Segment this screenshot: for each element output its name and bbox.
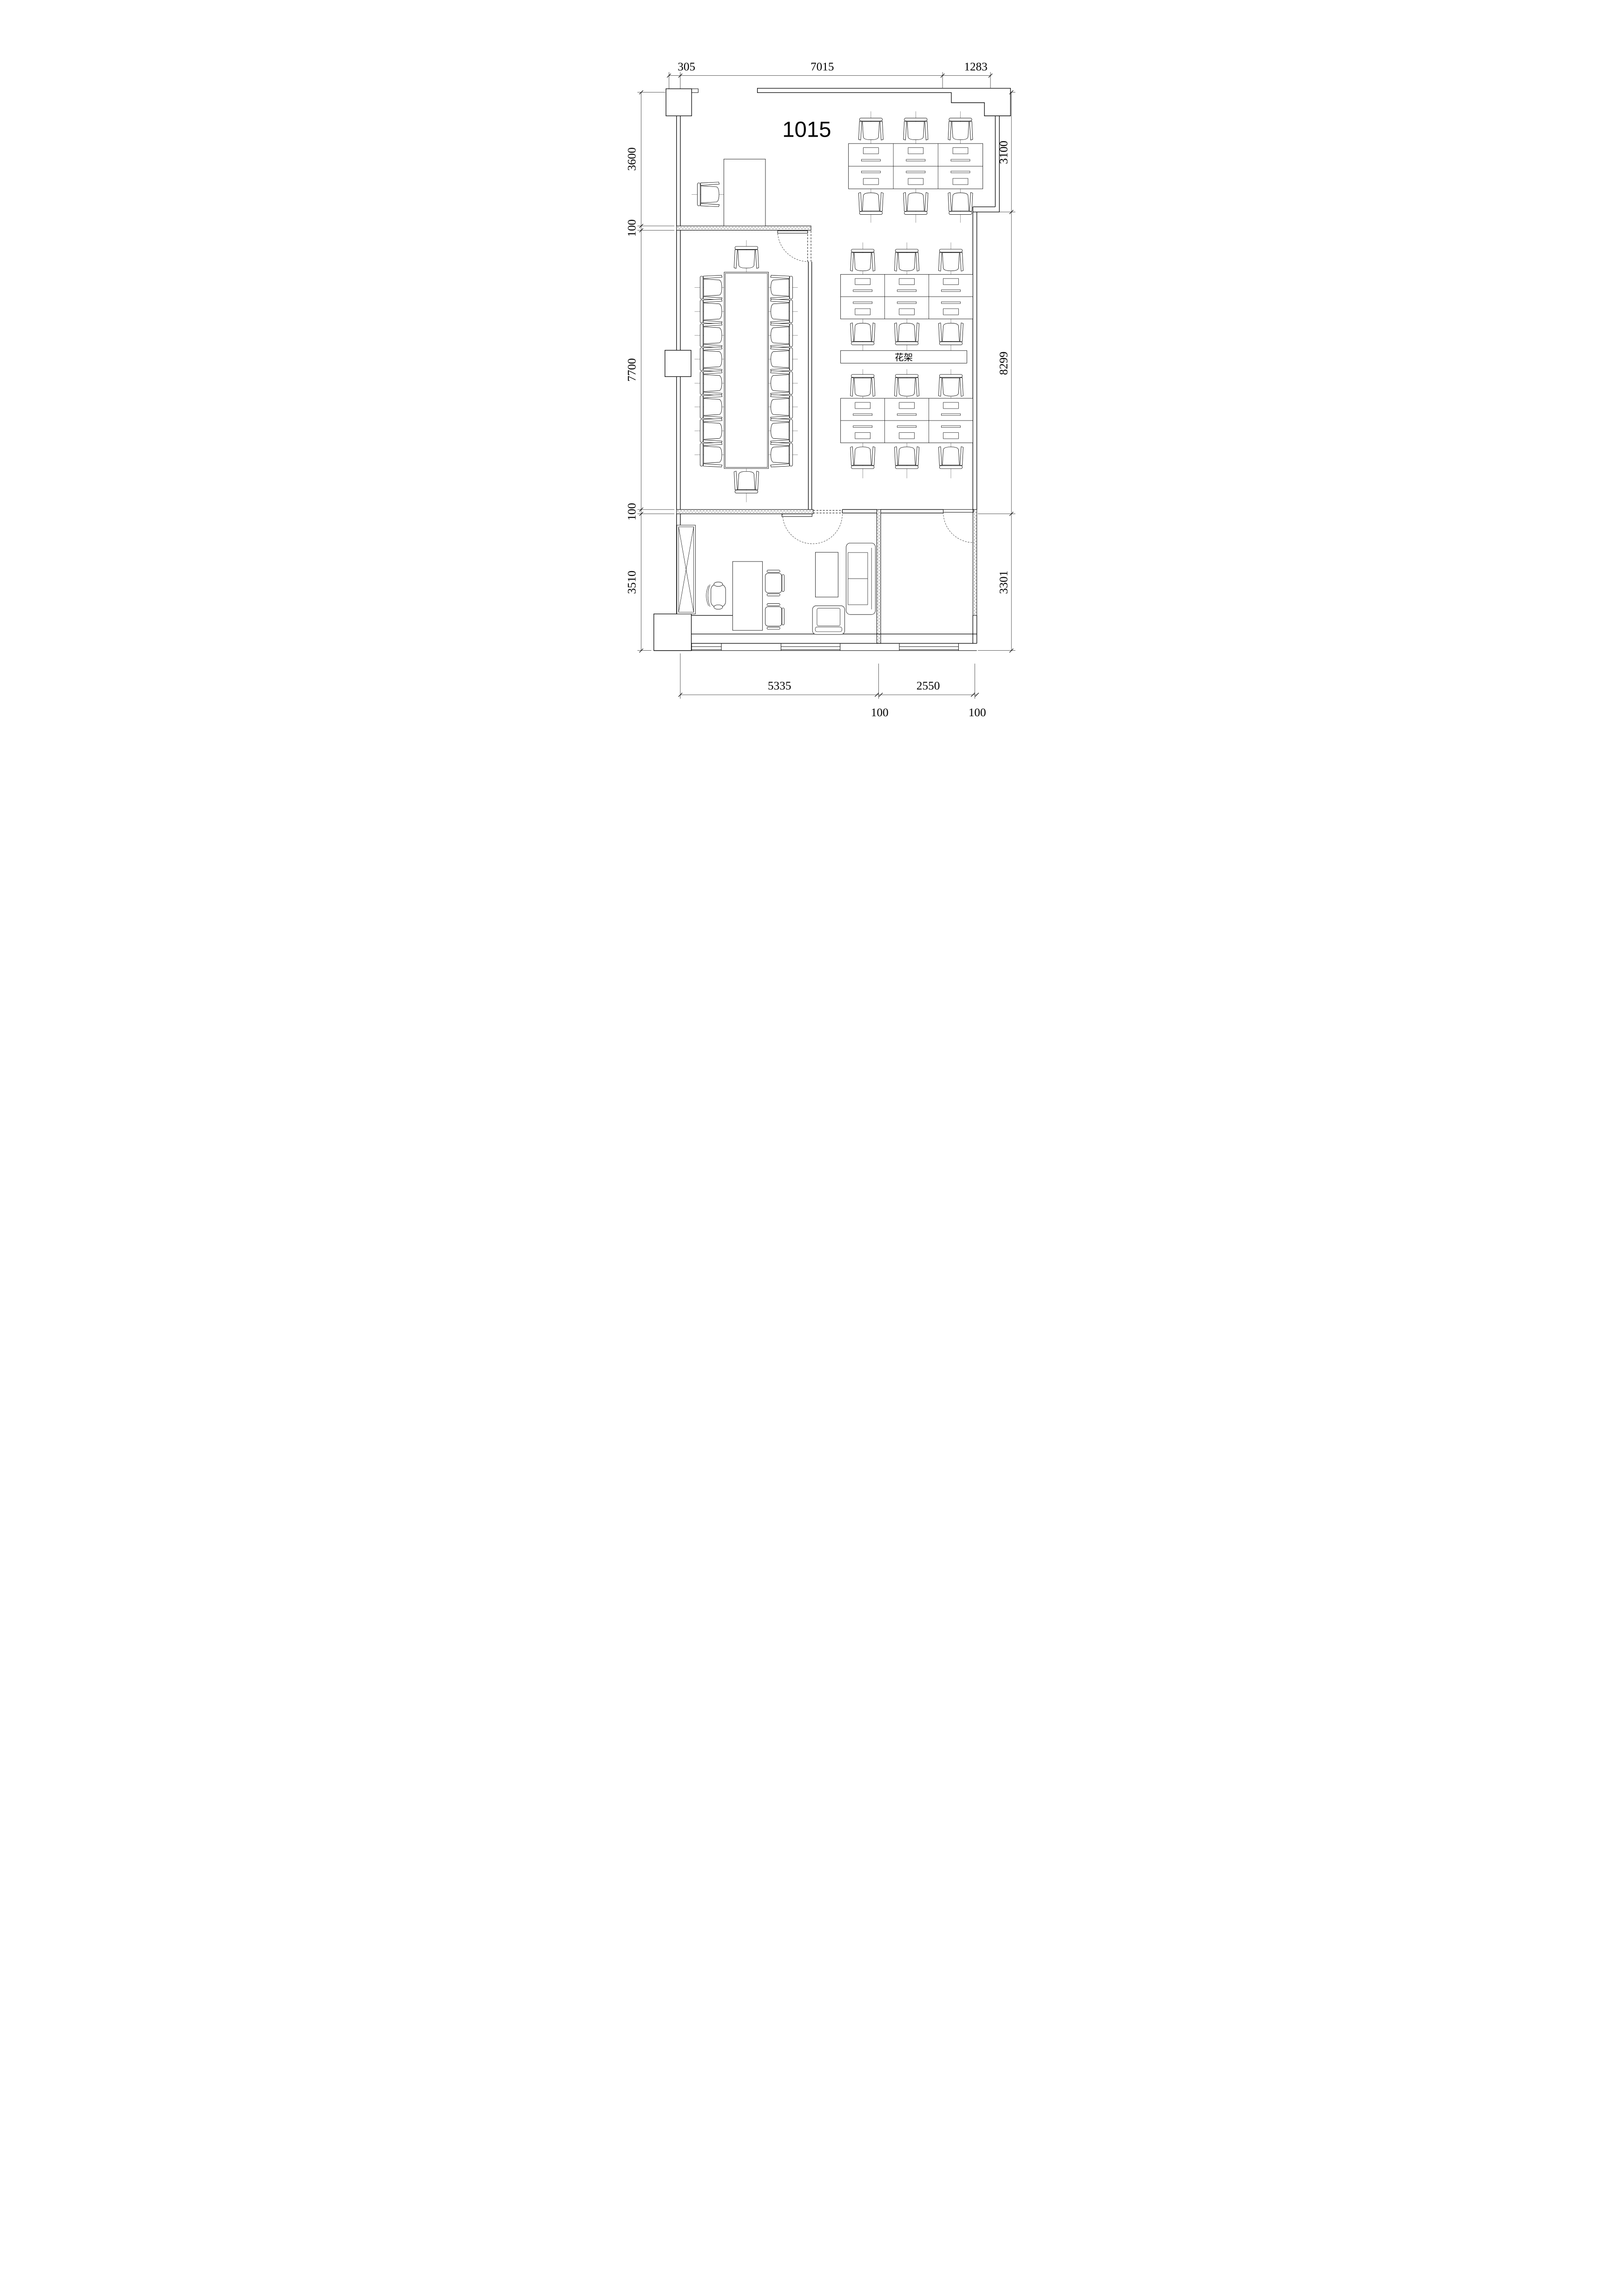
armchair [812,606,844,634]
right-room-door-swing [943,512,974,542]
workstation-cluster-top [849,118,983,214]
room-number: 1015 [782,118,831,142]
column-notch [692,89,698,92]
dim-top-305: 305 [678,60,695,73]
bottom-windows [654,643,977,650]
conference-door-leaf [778,231,808,233]
dim-top-7015: 7015 [811,60,834,73]
column-top-left [666,89,692,116]
lobby-door-swing [783,514,843,544]
guest-chair [765,604,785,629]
workstation-cluster-middle [841,249,973,345]
top-wall [758,88,1011,116]
lobby-door-leaf [782,514,812,517]
dim-bottom-100b: 100 [969,706,986,719]
dim-left-3600: 3600 [626,147,639,171]
conference-top-wall [677,226,811,230]
right-hatched-wall [973,509,977,615]
dim-right-8299: 8299 [997,351,1010,375]
dim-bottom-100a: 100 [871,706,889,719]
dim-left-100b: 100 [626,503,639,521]
dim-bottom-5335: 5335 [768,680,791,693]
manager-office [677,525,875,634]
guest-chair [765,570,785,596]
floor-plan-page: 花架 [555,0,1067,724]
conference-door-swing [778,231,808,262]
dim-left-7700: 7700 [626,358,639,382]
dim-top-1283: 1283 [964,60,987,73]
manager-desk [732,561,762,630]
reception-desk [724,159,765,226]
executive-chair [706,582,726,609]
flower-rack: 花架 [841,350,967,363]
dim-left-100a: 100 [626,219,639,237]
dim-bottom-2550: 2550 [916,680,940,693]
workstation-cluster-bottom [841,375,973,469]
dim-left-3510: 3510 [626,571,639,594]
conference-room [700,246,792,493]
lower-partition-wall [677,509,813,514]
vestibule [654,614,692,651]
column-left-wall [665,350,691,377]
floor-plan-drawing: 花架 [555,0,1067,724]
coffee-table [815,552,838,597]
lower-rooms-partition [877,509,881,643]
reception-area [697,159,765,226]
flower-rack-label: 花架 [895,352,913,363]
conference-table [724,272,769,468]
right-room-door-leaf [943,509,974,512]
sofa [846,543,876,614]
dim-right-3301: 3301 [997,571,1010,594]
dim-right-3100: 3100 [997,141,1010,164]
